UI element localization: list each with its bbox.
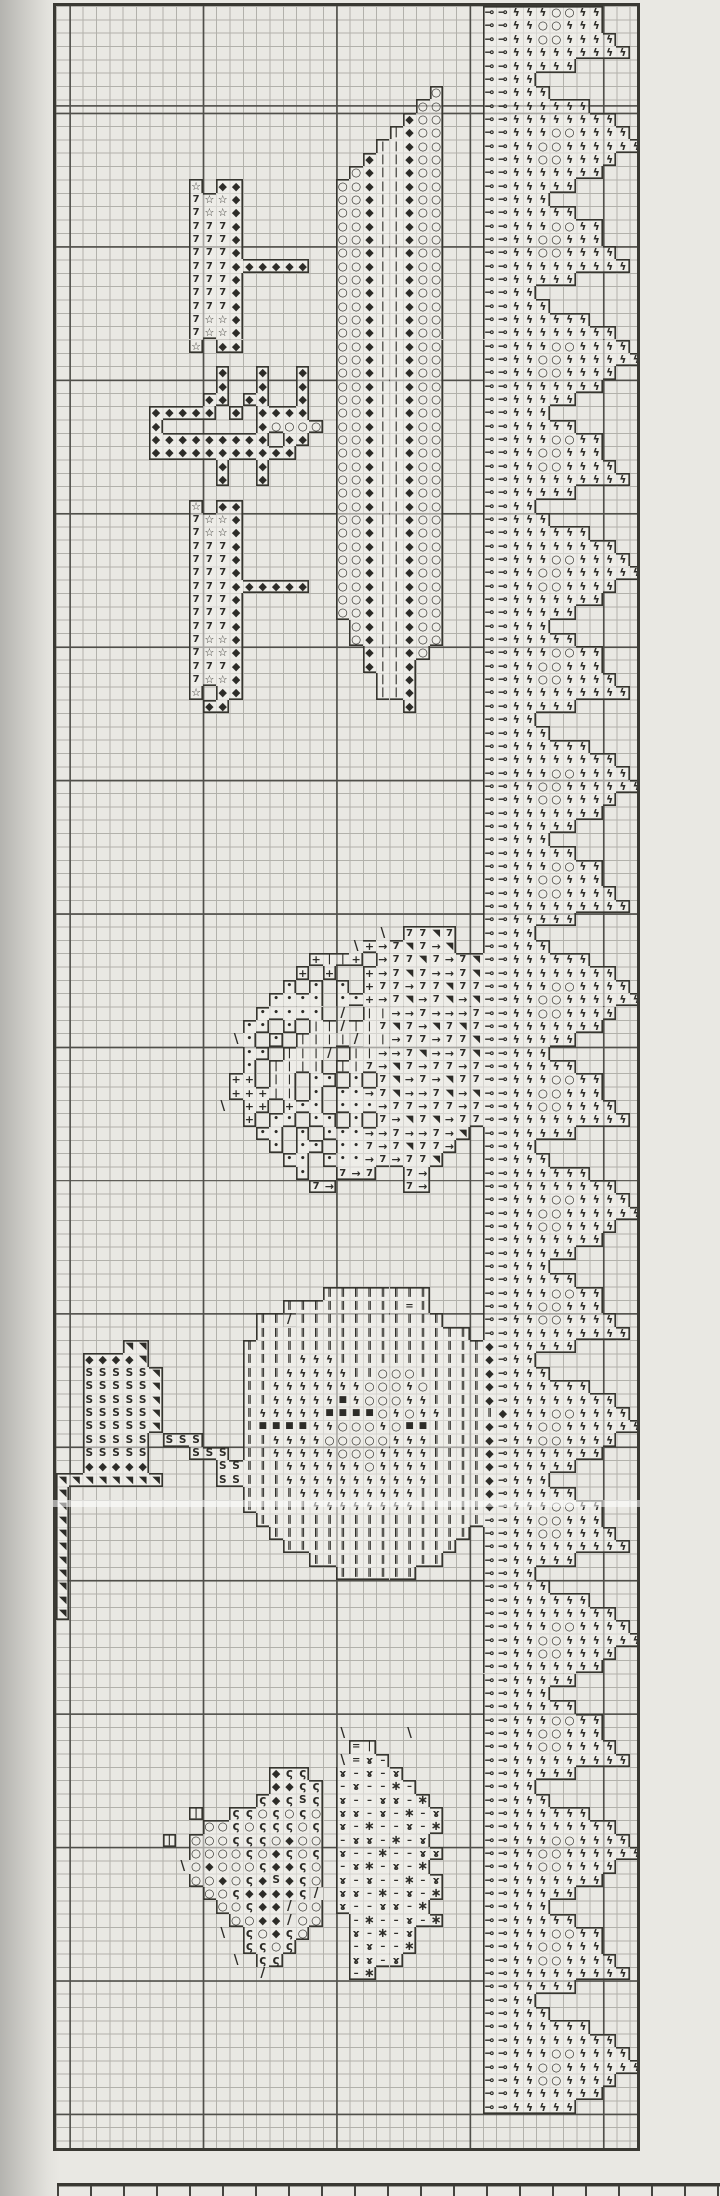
- stitch-cell-lightning-bolt: ϟ: [523, 1754, 536, 1767]
- stitch-cell-vertical-dash: |: [390, 366, 403, 379]
- stitch-cell-double-bar: ‖: [470, 1367, 483, 1380]
- stitch-cell-open-circle: ○: [349, 340, 362, 353]
- stitch-cell-double-bar: ‖: [376, 1340, 389, 1353]
- stitch-cell-vertical-dash: |: [376, 206, 389, 219]
- stitch-cell-dart: ⊸: [496, 1807, 509, 1820]
- stitch-cell-right-arrow: →: [323, 1180, 336, 1193]
- stitch-cell-horizontal-bar: –: [363, 1780, 376, 1793]
- stitch-cell-dart: ⊸: [483, 1754, 496, 1767]
- stitch-cell-black-diamond: ◆: [96, 1353, 109, 1366]
- stitch-cell-lightning-bolt: ϟ: [536, 966, 549, 979]
- stitch-cell-lightning-bolt: ϟ: [550, 1180, 563, 1193]
- stitch-cell-open-circle: ○: [416, 420, 429, 433]
- stitch-cell-open-circle: ○: [416, 286, 429, 299]
- stitch-cell-lightning-bolt: ϟ: [523, 1340, 536, 1353]
- stitch-cell-dart: ⊸: [496, 940, 509, 953]
- stitch-cell-lightning-bolt: ϟ: [576, 673, 589, 686]
- stitch-cell-letter-s: S: [83, 1407, 96, 1420]
- stitch-cell-open-star: ☆: [216, 193, 229, 206]
- stitch-cell-dart: ⊸: [496, 2047, 509, 2060]
- stitch-cell-dart: ⊸: [483, 940, 496, 953]
- stitch-cell-lightning-bolt: ϟ: [510, 1100, 523, 1113]
- stitch-cell-numeral-seven: 7: [216, 233, 229, 246]
- stitch-cell-double-bar: ‖: [349, 1353, 362, 1366]
- stitch-cell-lightning-bolt: ϟ: [603, 900, 616, 913]
- stitch-cell-open-circle: ○: [336, 193, 349, 206]
- stitch-cell-numeral-seven: 7: [336, 1167, 349, 1180]
- stitch-cell-filled-triangle: ◥: [56, 1593, 69, 1606]
- stitch-cell-lightning-bolt: ϟ: [536, 6, 549, 19]
- stitch-cell-double-bar: ‖: [430, 1460, 443, 1473]
- stitch-cell-lightning-bolt: ϟ: [536, 1020, 549, 1033]
- stitch-cell-dart: ⊸: [496, 846, 509, 859]
- stitch-cell-dart: ⊸: [496, 273, 509, 286]
- stitch-cell-open-star: ☆: [216, 673, 229, 686]
- stitch-cell-vertical-dash: |: [376, 513, 389, 526]
- stitch-cell-black-diamond: ◆: [296, 380, 309, 393]
- stitch-cell-dart: ⊸: [483, 540, 496, 553]
- stitch-cell-open-circle: ○: [363, 1380, 376, 1393]
- stitch-cell-black-diamond: ◆: [243, 446, 256, 459]
- stitch-cell-lightning-bolt: ϟ: [576, 553, 589, 566]
- stitch-cell-backstitch-up: /: [349, 1033, 362, 1046]
- stitch-cell-lightning-bolt: ϟ: [603, 1540, 616, 1553]
- stitch-cell-double-bar: ‖: [309, 1313, 322, 1326]
- stitch-cell-vertical-dash: |: [390, 500, 403, 513]
- stitch-cell-open-circle: ○: [563, 1834, 576, 1847]
- stitch-cell-lightning-bolt: ϟ: [523, 1887, 536, 1900]
- stitch-cell-lightning-bolt: ϟ: [309, 1380, 322, 1393]
- stitch-cell-lightning-bolt: ϟ: [563, 1767, 576, 1780]
- stitch-cell-backstitch-up: /: [336, 1020, 349, 1033]
- stitch-cell-open-circle: ○: [536, 446, 549, 459]
- stitch-cell-double-bar: ‖: [416, 1300, 429, 1313]
- stitch-cell-lightning-bolt: ϟ: [536, 179, 549, 192]
- stitch-cell-vertical-dash: |: [363, 1033, 376, 1046]
- stitch-cell-numeral-seven: 7: [189, 219, 202, 232]
- stitch-cell-lightning-bolt: ϟ: [523, 1807, 536, 1820]
- stitch-cell-lightning-bolt: ϟ: [590, 113, 603, 126]
- stitch-cell-black-diamond: ◆: [229, 553, 242, 566]
- stitch-cell-lightning-bolt: ϟ: [510, 86, 523, 99]
- stitch-cell-lightning-bolt: ϟ: [510, 2100, 523, 2113]
- stitch-cell-double-bar: ‖: [256, 1367, 269, 1380]
- stitch-cell-lightning-bolt: ϟ: [523, 2047, 536, 2060]
- stitch-cell-open-circle: ○: [416, 500, 429, 513]
- stitch-cell-lightning-bolt: ϟ: [523, 1140, 536, 1153]
- stitch-cell-double-bar: ‖: [336, 1513, 349, 1526]
- stitch-cell-backstitch-down: \: [229, 1954, 242, 1967]
- stitch-cell-lightning-bolt: ϟ: [403, 1393, 416, 1406]
- stitch-cell-double-bar: ‖: [363, 1300, 376, 1313]
- stitch-cell-black-diamond: ◆: [403, 380, 416, 393]
- stitch-cell-open-circle: ○: [550, 1647, 563, 1660]
- stitch-cell-lightning-bolt: ϟ: [536, 913, 549, 926]
- stitch-cell-open-circle: ○: [390, 1380, 403, 1393]
- stitch-cell-letter-s: S: [136, 1433, 149, 1446]
- stitch-cell-lightning-bolt: ϟ: [576, 1714, 589, 1727]
- stitch-cell-open-circle: ○: [416, 593, 429, 606]
- stitch-cell-lightning-bolt: ϟ: [630, 353, 640, 366]
- stitch-cell-lightning-bolt: ϟ: [510, 1207, 523, 1220]
- stitch-cell-vertical-dash: |: [390, 326, 403, 339]
- stitch-cell-lightning-bolt: ϟ: [590, 1967, 603, 1980]
- page-gutter-shading: [0, 0, 60, 2196]
- stitch-cell-lightning-bolt: ϟ: [510, 1393, 523, 1406]
- stitch-cell-open-circle: ○: [349, 620, 362, 633]
- stitch-cell-letter-s: S: [83, 1393, 96, 1406]
- stitch-cell-filled-triangle: ◥: [149, 1420, 162, 1433]
- stitch-cell-dart: ⊸: [496, 59, 509, 72]
- stitch-cell-black-diamond: ◆: [483, 1353, 496, 1366]
- stitch-cell-dart: ⊸: [483, 1714, 496, 1727]
- stitch-cell-lightning-bolt: ϟ: [510, 313, 523, 326]
- stitch-cell-vertical-dash: |: [283, 1060, 296, 1073]
- stitch-cell-lightning-bolt: ϟ: [403, 1380, 416, 1393]
- stitch-cell-right-arrow: →: [443, 1140, 456, 1153]
- stitch-cell-lightning-bolt: ϟ: [523, 1113, 536, 1126]
- stitch-cell-open-star: ☆: [216, 206, 229, 219]
- stitch-cell-horizontal-bar: –: [376, 1820, 389, 1833]
- stitch-cell-dart: ⊸: [496, 793, 509, 806]
- stitch-cell-black-diamond: ◆: [229, 246, 242, 259]
- stitch-cell-lightning-bolt: ϟ: [630, 1847, 640, 1860]
- stitch-cell-lightning-bolt: ϟ: [550, 540, 563, 553]
- stitch-cell-lightning-bolt: ϟ: [576, 259, 589, 272]
- stitch-cell-open-circle: ○: [550, 1633, 563, 1646]
- stitch-cell-dot: •: [296, 1007, 309, 1020]
- stitch-cell-dart: ⊸: [483, 1633, 496, 1646]
- stitch-cell-open-circle: ○: [349, 273, 362, 286]
- stitch-cell-black-diamond: ◆: [269, 580, 282, 593]
- stitch-cell-comma: ς: [283, 1820, 296, 1833]
- stitch-cell-numeral-seven: 7: [203, 219, 216, 232]
- stitch-cell-open-circle: ○: [416, 233, 429, 246]
- stitch-cell-numeral-seven: 7: [203, 259, 216, 272]
- stitch-cell-right-arrow: →: [430, 1047, 443, 1060]
- stitch-cell-lightning-bolt: ϟ: [603, 1847, 616, 1860]
- stitch-cell-black-diamond: ◆: [363, 553, 376, 566]
- stitch-cell-lightning-bolt: ϟ: [336, 1487, 349, 1500]
- stitch-cell-right-arrow: →: [416, 1020, 429, 1033]
- stitch-cell-lightning-bolt: ϟ: [603, 113, 616, 126]
- stitch-cell-black-diamond: ◆: [483, 1420, 496, 1433]
- stitch-cell-open-circle: ○: [336, 433, 349, 446]
- stitch-cell-lightning-bolt: ϟ: [536, 753, 549, 766]
- stitch-cell-lightning-bolt: ϟ: [550, 846, 563, 859]
- stitch-cell-double-bar: ‖: [430, 1527, 443, 1540]
- stitch-cell-dart: ⊸: [496, 833, 509, 846]
- stitch-cell-lightning-bolt: ϟ: [590, 1633, 603, 1646]
- stitch-cell-open-circle: ○: [550, 780, 563, 793]
- stitch-cell-lightning-bolt: ϟ: [510, 1794, 523, 1807]
- stitch-cell-comma: ς: [283, 1847, 296, 1860]
- stitch-cell-filled-triangle: ◥: [470, 953, 483, 966]
- stitch-cell-filled-triangle: ◥: [403, 966, 416, 979]
- stitch-cell-open-circle: ○: [563, 1407, 576, 1420]
- stitch-cell-filled-triangle: ◥: [403, 940, 416, 953]
- stitch-cell-lightning-bolt: ϟ: [590, 1327, 603, 1340]
- stitch-cell-lightning-bolt: ϟ: [523, 1367, 536, 1380]
- stitch-cell-open-circle: ○: [416, 553, 429, 566]
- stitch-cell-lightning-bolt: ϟ: [590, 1847, 603, 1860]
- stitch-cell-lightning-bolt: ϟ: [510, 1447, 523, 1460]
- stitch-cell-lightning-bolt: ϟ: [523, 1047, 536, 1060]
- stitch-cell-double-bar: ‖: [430, 1513, 443, 1526]
- stitch-cell-open-circle: ○: [416, 406, 429, 419]
- stitch-cell-black-diamond: ◆: [216, 340, 229, 353]
- stitch-cell-lightning-bolt: ϟ: [576, 19, 589, 32]
- stitch-cell-open-circle: ○: [550, 1433, 563, 1446]
- stitch-cell-dot: •: [269, 1007, 282, 1020]
- stitch-cell-black-diamond: ◆: [229, 299, 242, 312]
- stitch-cell-numeral-seven: 7: [189, 513, 202, 526]
- stitch-cell-open-circle: ○: [349, 446, 362, 459]
- stitch-cell-double-bar: ‖: [430, 1433, 443, 1446]
- stitch-cell-vertical-dash: |: [390, 580, 403, 593]
- stitch-cell-lightning-bolt: ϟ: [616, 1633, 629, 1646]
- stitch-cell-open-circle: ○: [349, 353, 362, 366]
- stitch-cell-open-circle: ○: [536, 19, 549, 32]
- stitch-cell-double-bar: ‖: [376, 1327, 389, 1340]
- stitch-cell-lightning-bolt: ϟ: [536, 1247, 549, 1260]
- stitch-cell-lightning-bolt: ϟ: [523, 153, 536, 166]
- stitch-cell-lightning-bolt: ϟ: [563, 1180, 576, 1193]
- stitch-cell-dart: ⊸: [483, 1247, 496, 1260]
- stitch-cell-dart: ⊸: [496, 1900, 509, 1913]
- stitch-cell-lightning-bolt: ϟ: [576, 1593, 589, 1606]
- stitch-cell-double-bar: ‖: [349, 1567, 362, 1580]
- stitch-cell-numeral-seven: 7: [403, 1047, 416, 1060]
- stitch-cell-black-diamond: ◆: [403, 166, 416, 179]
- stitch-cell-black-diamond: ◆: [403, 326, 416, 339]
- stitch-cell-dart: ⊸: [483, 1220, 496, 1233]
- stitch-cell-dart: ⊸: [496, 1460, 509, 1473]
- stitch-cell-numeral-seven: 7: [189, 646, 202, 659]
- stitch-cell-lightning-bolt: ϟ: [603, 2047, 616, 2060]
- stitch-cell-double-bar: ‖: [430, 1473, 443, 1486]
- stitch-cell-lightning-bolt: ϟ: [510, 740, 523, 753]
- stitch-cell-vertical-dash: |: [336, 953, 349, 966]
- stitch-cell-dart: ⊸: [483, 926, 496, 939]
- stitch-cell-filled-square: ■: [403, 1420, 416, 1433]
- stitch-cell-dart: ⊸: [496, 286, 509, 299]
- stitch-cell-lightning-bolt: ϟ: [510, 1113, 523, 1126]
- stitch-cell-letter-s: S: [229, 1460, 242, 1473]
- stitch-cell-lightning-bolt: ϟ: [510, 1887, 523, 1900]
- stitch-cell-lightning-bolt: ϟ: [590, 1874, 603, 1887]
- stitch-cell-letter-s: S: [216, 1447, 229, 1460]
- stitch-cell-dart: ⊸: [483, 313, 496, 326]
- stitch-cell-lightning-bolt: ϟ: [603, 540, 616, 553]
- stitch-cell-lightning-bolt: ϟ: [296, 1407, 309, 1420]
- stitch-cell-lightning-bolt: ϟ: [603, 1180, 616, 1193]
- stitch-cell-right-arrow: →: [376, 940, 389, 953]
- stitch-cell-numeral-seven: 7: [216, 660, 229, 673]
- stitch-cell-double-bar: ‖: [403, 1513, 416, 1526]
- stitch-cell-lightning-bolt: ϟ: [510, 1473, 523, 1486]
- stitch-cell-lightning-bolt: ϟ: [510, 259, 523, 272]
- stitch-cell-vertical-dash: |: [349, 1020, 362, 1033]
- stitch-cell-lightning-bolt: ϟ: [283, 1393, 296, 1406]
- stitch-cell-lightning-bolt: ϟ: [523, 980, 536, 993]
- stitch-cell-lightning-bolt: ϟ: [510, 1660, 523, 1673]
- stitch-cell-lightning-bolt: ϟ: [550, 1914, 563, 1927]
- stitch-cell-numeral-seven: 7: [363, 1140, 376, 1153]
- stitch-cell-numeral-seven: 7: [430, 1127, 443, 1140]
- stitch-cell-lightning-bolt: ϟ: [523, 433, 536, 446]
- stitch-cell-lightning-bolt: ϟ: [590, 593, 603, 606]
- stitch-cell-lightning-bolt: ϟ: [616, 46, 629, 59]
- stitch-cell-double-bar: ‖: [443, 1367, 456, 1380]
- stitch-cell-black-diamond: ◆: [296, 393, 309, 406]
- stitch-cell-lightning-bolt: ϟ: [563, 2087, 576, 2100]
- stitch-cell-dot: •: [283, 980, 296, 993]
- stitch-cell-open-circle: ○: [416, 460, 429, 473]
- stitch-cell-lightning-bolt: ϟ: [536, 606, 549, 619]
- stitch-cell-numeral-seven: 7: [470, 980, 483, 993]
- stitch-cell-letter-s: S: [123, 1407, 136, 1420]
- stitch-cell-black-diamond: ◆: [363, 153, 376, 166]
- stitch-cell-lightning-bolt: ϟ: [590, 1607, 603, 1620]
- stitch-cell-lightning-bolt: ϟ: [510, 1727, 523, 1740]
- stitch-cell-dart: ⊸: [483, 2020, 496, 2033]
- stitch-cell-letter-s: S: [296, 1794, 309, 1807]
- stitch-cell-lightning-bolt: ϟ: [616, 2047, 629, 2060]
- stitch-cell-lightning-bolt: ϟ: [510, 1087, 523, 1100]
- stitch-cell-dart: ⊸: [496, 139, 509, 152]
- stitch-cell-open-circle: ○: [363, 1393, 376, 1406]
- stitch-cell-vertical-dash: |: [390, 513, 403, 526]
- stitch-cell-lightning-bolt: ϟ: [616, 780, 629, 793]
- stitch-cell-open-circle: ○: [203, 1820, 216, 1833]
- stitch-cell-open-circle: ○: [550, 2047, 563, 2060]
- stitch-cell-black-diamond: ◆: [229, 446, 242, 459]
- stitch-cell-dart: ⊸: [496, 1847, 509, 1860]
- stitch-cell-dart: ⊸: [483, 1647, 496, 1660]
- stitch-cell-dart: ⊸: [483, 2100, 496, 2113]
- stitch-cell-dart: ⊸: [483, 1100, 496, 1113]
- stitch-cell-lightning-bolt: ϟ: [550, 806, 563, 819]
- stitch-cell-lightning-bolt: ϟ: [296, 1447, 309, 1460]
- stitch-cell-black-diamond: ◆: [243, 433, 256, 446]
- stitch-cell-dart: ⊸: [496, 1020, 509, 1033]
- stitch-cell-lightning-bolt: ϟ: [536, 1980, 549, 1993]
- stitch-cell-dot: •: [336, 1153, 349, 1166]
- stitch-cell-filled-square: ■: [323, 1407, 336, 1420]
- stitch-cell-black-diamond: ◆: [229, 233, 242, 246]
- stitch-cell-lightning-bolt: ϟ: [536, 1447, 549, 1460]
- stitch-cell-open-circle: ○: [349, 233, 362, 246]
- stitch-cell-dart: ⊸: [496, 1033, 509, 1046]
- stitch-cell-right-arrow: →: [376, 1047, 389, 1060]
- stitch-cell-open-circle: ○: [550, 1834, 563, 1847]
- stitch-cell-double-bar: ‖: [470, 1340, 483, 1353]
- stitch-cell-double-bar: ‖: [256, 1313, 269, 1326]
- stitch-cell-open-circle: ○: [416, 633, 429, 646]
- stitch-cell-lightning-bolt: ϟ: [616, 766, 629, 779]
- stitch-cell-letter-s: S: [229, 1473, 242, 1486]
- stitch-cell-dart: ⊸: [483, 420, 496, 433]
- stitch-cell-black-diamond: ◆: [176, 406, 189, 419]
- stitch-cell-lightning-bolt: ϟ: [563, 1033, 576, 1046]
- stitch-cell-comma: ς: [256, 1794, 269, 1807]
- stitch-cell-lightning-bolt: ϟ: [523, 806, 536, 819]
- stitch-cell-open-circle: ○: [550, 580, 563, 593]
- stitch-cell-filled-square: ■: [363, 1407, 376, 1420]
- stitch-cell-open-circle: ○: [336, 473, 349, 486]
- stitch-cell-numeral-seven: 7: [403, 926, 416, 939]
- stitch-cell-black-diamond: ◆: [403, 646, 416, 659]
- stitch-cell-open-circle: ○: [563, 433, 576, 446]
- stitch-cell-lightning-bolt: ϟ: [576, 1740, 589, 1753]
- stitch-cell-dart: ⊸: [496, 1220, 509, 1233]
- stitch-cell-black-diamond: ◆: [229, 526, 242, 539]
- stitch-cell-open-circle: ○: [430, 433, 443, 446]
- stitch-cell-double-bar: ‖: [390, 1567, 403, 1580]
- stitch-cell-double-bar: ‖: [403, 1553, 416, 1566]
- stitch-cell-dart: ⊸: [496, 340, 509, 353]
- stitch-cell-lightning-bolt: ϟ: [590, 1220, 603, 1233]
- stitch-cell-black-diamond: ◆: [216, 446, 229, 459]
- stitch-cell-dot: •: [336, 993, 349, 1006]
- stitch-cell-lightning-bolt: ϟ: [309, 1407, 322, 1420]
- stitch-cell-dart: ⊸: [496, 593, 509, 606]
- stitch-cell-black-diamond: ◆: [216, 366, 229, 379]
- stitch-cell-open-circle: ○: [336, 353, 349, 366]
- stitch-cell-horizontal-bar: –: [390, 1820, 403, 1833]
- stitch-cell-dot: •: [269, 1033, 282, 1046]
- stitch-cell-black-diamond: ◆: [203, 1860, 216, 1873]
- stitch-cell-dart: ⊸: [496, 1247, 509, 1260]
- stitch-cell-open-circle: ○: [229, 1914, 242, 1927]
- stitch-cell-vertical-dash: |: [376, 380, 389, 393]
- stitch-cell-open-circle: ○: [416, 1380, 429, 1393]
- stitch-cell-open-circle: ○: [550, 1954, 563, 1967]
- stitch-cell-double-bar: ‖: [483, 1407, 496, 1420]
- stitch-cell-double-bar: ‖: [443, 1460, 456, 1473]
- stitch-cell-lightning-bolt: ϟ: [576, 966, 589, 979]
- stitch-cell-dart: ⊸: [483, 1513, 496, 1526]
- stitch-cell-dart: ⊸: [483, 1260, 496, 1273]
- stitch-cell-open-star: ☆: [203, 673, 216, 686]
- stitch-cell-lightning-bolt: ϟ: [563, 446, 576, 459]
- stitch-cell-double-bar: ‖: [430, 1487, 443, 1500]
- stitch-cell-numeral-seven: 7: [216, 246, 229, 259]
- stitch-cell-black-diamond: ◆: [269, 1887, 282, 1900]
- stitch-cell-lightning-bolt: ϟ: [563, 1100, 576, 1113]
- stitch-cell-lightning-bolt: ϟ: [603, 246, 616, 259]
- stitch-cell-letter-s: S: [136, 1447, 149, 1460]
- stitch-cell-lightning-bolt: ϟ: [510, 1647, 523, 1660]
- stitch-cell-dart: ⊸: [483, 179, 496, 192]
- stitch-cell-lightning-bolt: ϟ: [576, 1447, 589, 1460]
- stitch-cell-vertical-dash: |: [390, 606, 403, 619]
- stitch-cell-lightning-bolt: ϟ: [510, 606, 523, 619]
- stitch-cell-lightning-bolt: ϟ: [550, 900, 563, 913]
- stitch-cell-filled-triangle: ◥: [56, 1580, 69, 1593]
- stitch-cell-open-circle: ○: [349, 313, 362, 326]
- stitch-cell-open-circle: ○: [563, 1714, 576, 1727]
- stitch-cell-open-circle: ○: [536, 1633, 549, 1646]
- stitch-cell-lightning-bolt: ϟ: [523, 1553, 536, 1566]
- stitch-cell-double-bar: ‖: [456, 1527, 469, 1540]
- stitch-cell-lightning-bolt: ϟ: [590, 1620, 603, 1633]
- stitch-cell-lightning-bolt: ϟ: [536, 1900, 549, 1913]
- stitch-cell-lightning-bolt: ϟ: [563, 1060, 576, 1073]
- stitch-cell-open-circle: ○: [416, 126, 429, 139]
- stitch-cell-black-diamond: ◆: [283, 446, 296, 459]
